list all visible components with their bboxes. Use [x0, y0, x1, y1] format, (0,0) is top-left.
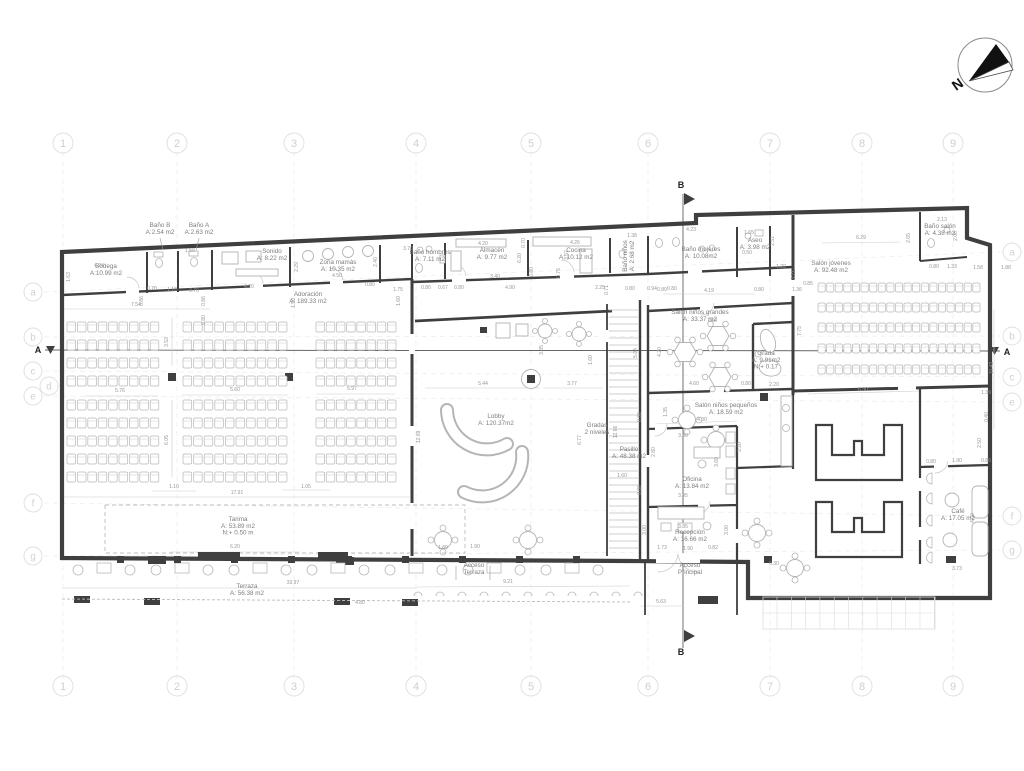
dimension-label: 2.80: [651, 447, 657, 457]
dimension-label: 0.80: [667, 286, 677, 292]
dimension-label: 2.13: [937, 217, 947, 223]
dimension-label: 1.73: [657, 545, 667, 551]
exterior-stair: [816, 502, 902, 557]
dimension-label: 6.20: [517, 253, 523, 263]
grid-row-label: f: [32, 499, 35, 510]
grid-column-label: 5: [528, 681, 534, 693]
seat: [268, 358, 277, 368]
seat: [257, 436, 266, 446]
shelf: [726, 484, 735, 494]
dimension-label: 4.20: [478, 241, 488, 247]
dimension-label: 9.21: [503, 579, 513, 585]
seat: [336, 418, 345, 428]
seat: [852, 344, 859, 353]
seat: [973, 344, 980, 353]
seat: [77, 418, 86, 428]
grid-row-label: a: [1009, 248, 1015, 259]
seat: [236, 340, 245, 350]
dimension-label: 3.21: [791, 270, 797, 280]
dimension-label: 1.63: [66, 272, 72, 282]
room-label-bano-mujeres: Baño mujeresA: 10.08m2: [682, 246, 721, 260]
seat: [268, 376, 277, 386]
dimension-label: 4.90: [505, 285, 515, 291]
seat: [367, 340, 376, 350]
section-a-label-left: A: [35, 345, 42, 355]
seat: [347, 472, 356, 482]
room-label-salon-ninos-pequenos: Salón niños pequeñosA: 18.59 m2: [695, 402, 757, 416]
seat: [247, 418, 256, 428]
dimension-label: 1.89: [438, 545, 448, 551]
dimension-label: 0.80: [201, 315, 207, 325]
exterior-stair: [816, 425, 902, 480]
seat: [921, 323, 928, 332]
dimension-label: 1.36: [792, 287, 802, 293]
seat: [818, 365, 825, 374]
seat: [947, 303, 954, 312]
seat: [861, 283, 868, 292]
dimension-label: 0.67: [438, 285, 448, 291]
seat: [347, 436, 356, 446]
seat: [357, 400, 366, 410]
seat: [129, 322, 138, 332]
room-label-salon-ninos-grandes: Salón niños grandesA: 33.37 m2: [671, 309, 728, 323]
seat: [257, 454, 266, 464]
grid-column-label: 5: [528, 138, 534, 150]
dimension-label: 4.19: [704, 288, 714, 294]
seat: [215, 472, 224, 482]
column: [573, 556, 580, 563]
seat: [947, 283, 954, 292]
column: [760, 393, 768, 401]
terrace-chair: [634, 592, 642, 596]
seat: [150, 418, 159, 428]
terrace-chair: [590, 592, 598, 596]
seat: [278, 472, 287, 482]
dimension-label: 10.42: [989, 362, 995, 375]
seat: [316, 340, 325, 350]
seat: [387, 454, 396, 464]
seat: [357, 436, 366, 446]
seat: [870, 303, 877, 312]
seat: [109, 376, 118, 386]
grid-row-label: e: [1009, 398, 1015, 409]
seat: [827, 283, 834, 292]
seat: [357, 340, 366, 350]
seat: [183, 376, 192, 386]
interior-wall: [62, 279, 412, 295]
seat: [247, 400, 256, 410]
dimension-label: 5.60: [230, 387, 240, 393]
seat: [268, 322, 277, 332]
dimension-label: 0.70: [189, 288, 199, 294]
terrace-table: [253, 563, 267, 573]
seat: [225, 358, 234, 368]
dimension-labels: 1.634.247.541.500.701.100.700.860.864.20…: [66, 217, 1011, 606]
seat: [377, 436, 386, 446]
seat: [921, 344, 928, 353]
seat: [150, 340, 159, 350]
room-label-bano-b: Baño BA:2.54 m2: [146, 222, 175, 236]
seat: [930, 344, 937, 353]
lobby-table: [513, 525, 543, 555]
seat: [870, 283, 877, 292]
terrace-chair: [436, 592, 444, 596]
seat: [215, 376, 224, 386]
grid-column-label: 6: [645, 681, 651, 693]
seat: [336, 454, 345, 464]
dimension-label: 0.80: [929, 264, 939, 270]
seat: [109, 358, 118, 368]
seat: [183, 400, 192, 410]
terrace-table: [175, 563, 189, 573]
seat: [183, 340, 192, 350]
dimension-label: 3.40: [490, 274, 500, 280]
room-label-almacen: AlmacénA: 9.77 m2: [477, 247, 508, 261]
dimension-label: 1.33: [947, 264, 957, 270]
seat: [257, 322, 266, 332]
seat: [878, 344, 885, 353]
seat: [109, 418, 118, 428]
terrace-table: [487, 563, 501, 573]
seat: [964, 344, 971, 353]
terrace-chair: [73, 565, 83, 575]
column: [527, 375, 535, 383]
grid-column-label: 1: [60, 138, 66, 150]
seat: [257, 472, 266, 482]
cafe-chairs: [927, 473, 933, 563]
room-label-aseo: AseoA: 3.98 m2: [740, 237, 771, 251]
shelf: [451, 251, 461, 271]
dimension-label: 0.30: [769, 561, 779, 567]
room-label-recepcion: RecepciónA: 16.66 m2: [673, 529, 707, 543]
dimension-label: 0.80: [529, 267, 535, 277]
seat: [377, 322, 386, 332]
seat: [377, 358, 386, 368]
seat: [947, 323, 954, 332]
column: [168, 373, 176, 381]
room-label-acceso-principal: AccesoPrincipal: [678, 562, 702, 576]
seat: [204, 454, 213, 464]
room-label-sonido: SonidoA: 8.22 m2: [257, 248, 288, 262]
seat: [225, 454, 234, 464]
seat: [326, 358, 335, 368]
dimension-label: 1.60: [396, 296, 402, 306]
seat: [109, 436, 118, 446]
seat: [67, 340, 76, 350]
desk: [694, 447, 720, 458]
patio-table: [780, 553, 810, 583]
sink: [783, 425, 790, 432]
seat: [225, 376, 234, 386]
room-label-pasillo: PasilloA: 48.38 m2: [612, 446, 646, 460]
seat: [204, 400, 213, 410]
seat: [827, 303, 834, 312]
north-label: N: [949, 75, 966, 94]
room-label-acceso-terraza: AccesoTerraza: [464, 562, 485, 576]
seat: [964, 323, 971, 332]
interior-wall: [640, 300, 648, 560]
seat: [88, 418, 97, 428]
seat: [973, 283, 980, 292]
column: [174, 556, 181, 563]
seat: [956, 323, 963, 332]
terrace-chair: [229, 565, 239, 575]
seat: [921, 283, 928, 292]
seat: [316, 376, 325, 386]
seat: [194, 454, 203, 464]
seat: [904, 283, 911, 292]
sink: [783, 405, 790, 412]
seat: [236, 376, 245, 386]
door-openings: [126, 268, 948, 563]
seat: [336, 436, 345, 446]
grid-row-line: [44, 550, 1000, 556]
seat: [347, 340, 356, 350]
seat: [336, 376, 345, 386]
seat: [77, 358, 86, 368]
dimension-label: 3.57: [564, 250, 570, 260]
seat: [357, 322, 366, 332]
dimension-label: 0.86: [139, 296, 145, 306]
seat: [88, 472, 97, 482]
seat: [129, 418, 138, 428]
floor-plan-canvas: 112233445566778899aabbccdeeffgg A A B B: [0, 0, 1024, 771]
seat: [844, 323, 851, 332]
cafe-table: [943, 533, 957, 547]
seat: [387, 358, 396, 368]
seat: [88, 454, 97, 464]
room-label-bano-ninos: Baño niñosA: 2.68 m2: [622, 240, 636, 272]
grid-column-label: 9: [950, 681, 956, 693]
dimension-label: 6.29: [856, 235, 866, 241]
room-label-zona-mamas: Zona mamásA: 10.35 m2: [320, 259, 357, 273]
grid-row-label: e: [30, 392, 36, 403]
dimension-label: 6.77: [577, 435, 583, 445]
grid-column-label: 4: [413, 681, 419, 693]
seat: [98, 376, 107, 386]
seat: [247, 322, 256, 332]
seat: [835, 365, 842, 374]
seat: [870, 344, 877, 353]
seat: [316, 418, 325, 428]
seat: [387, 376, 396, 386]
seat: [215, 436, 224, 446]
dimension-label: 4.20: [244, 284, 254, 290]
terrace-chair: [414, 592, 422, 596]
dimension-label: 12.66: [613, 426, 619, 439]
seat: [377, 376, 386, 386]
lobby-kiosk: [516, 324, 528, 336]
room-label-lobby: LobbyA: 120.37m2: [478, 413, 514, 427]
seat: [140, 400, 149, 410]
seat: [140, 358, 149, 368]
chair: [698, 460, 706, 468]
seat: [973, 365, 980, 374]
seat: [183, 322, 192, 332]
seat: [956, 303, 963, 312]
seat: [129, 376, 138, 386]
column: [516, 556, 523, 563]
seat: [973, 323, 980, 332]
seat: [150, 454, 159, 464]
dimension-label: 0.80: [741, 381, 751, 387]
seat: [119, 436, 128, 446]
seat: [827, 323, 834, 332]
seat: [278, 400, 287, 410]
seat: [336, 340, 345, 350]
seat: [204, 376, 213, 386]
grid-column-label: 9: [950, 138, 956, 150]
seat: [140, 472, 149, 482]
seat: [947, 365, 954, 374]
seat: [88, 376, 97, 386]
seat: [129, 472, 138, 482]
cafe-table: [945, 493, 959, 507]
grid-column-label: 6: [645, 138, 651, 150]
grid-column-label: 7: [767, 681, 773, 693]
seat: [278, 418, 287, 428]
seat: [367, 376, 376, 386]
grid-row-label: d: [46, 382, 52, 393]
seat: [887, 323, 894, 332]
seat: [109, 472, 118, 482]
seat: [347, 418, 356, 428]
dimension-label: 4.50: [332, 273, 342, 279]
grid-row-label: f: [1011, 512, 1014, 523]
seat: [326, 454, 335, 464]
reception-desk: [658, 507, 704, 519]
seat: [109, 400, 118, 410]
terrace-chair: [151, 565, 161, 575]
seat: [119, 454, 128, 464]
seat: [77, 454, 86, 464]
dimension-label: 1.10: [167, 287, 177, 293]
seat: [844, 303, 851, 312]
seat: [236, 400, 245, 410]
dimension-label: 3.00: [642, 525, 648, 535]
seat: [326, 322, 335, 332]
seat: [377, 400, 386, 410]
dimension-label: 0.71: [604, 285, 610, 295]
seat: [183, 418, 192, 428]
lobby-kiosk: [496, 323, 510, 338]
seat: [377, 340, 386, 350]
floor-plan-svg: 112233445566778899aabbccdeeffgg A A B B: [0, 0, 1024, 771]
seat: [88, 322, 97, 332]
dimension-label: 4.26: [570, 240, 580, 246]
seat: [921, 365, 928, 374]
seat: [357, 418, 366, 428]
seat: [257, 376, 266, 386]
dimension-label: 33.97: [287, 580, 300, 586]
terrace-furniture: [73, 563, 642, 596]
seat: [183, 436, 192, 446]
seat: [98, 400, 107, 410]
seat: [236, 418, 245, 428]
seat: [225, 340, 234, 350]
grid-column-label: 8: [859, 138, 865, 150]
dimension-label: 3.80: [678, 433, 688, 439]
dimension-label: 2.51: [770, 236, 776, 246]
seat: [387, 400, 396, 410]
grid-column-label: 7: [767, 138, 773, 150]
seat: [278, 454, 287, 464]
seat: [150, 472, 159, 482]
seat: [818, 283, 825, 292]
dimension-label: 1.60: [588, 355, 594, 365]
dimension-label: 0.50: [742, 250, 752, 256]
dimension-label: 6.20: [230, 544, 240, 550]
column: [345, 556, 352, 563]
seat: [336, 400, 345, 410]
terrace-chair: [307, 565, 317, 575]
seat: [150, 358, 159, 368]
seat: [183, 472, 192, 482]
seat: [236, 454, 245, 464]
seat: [67, 358, 76, 368]
dimension-label: 1.90: [470, 544, 480, 550]
shelf: [726, 432, 735, 443]
seat: [895, 303, 902, 312]
seat: [119, 472, 128, 482]
seat: [247, 436, 256, 446]
seat: [278, 340, 287, 350]
grid-column-label: 4: [413, 138, 419, 150]
cafe-chair: [927, 515, 933, 526]
seat: [77, 400, 86, 410]
seat: [835, 323, 842, 332]
dimension-label: 1.50: [291, 298, 297, 308]
seat: [204, 358, 213, 368]
sound-console: [236, 269, 278, 276]
dimension-label: 0.80: [637, 485, 643, 495]
seat: [204, 436, 213, 446]
seat: [878, 283, 885, 292]
dimension-label: 0.86: [981, 458, 991, 464]
seat: [930, 365, 937, 374]
grid-row-label: g: [1009, 546, 1015, 557]
seat: [215, 340, 224, 350]
seat: [129, 358, 138, 368]
terrace-chair: [502, 592, 510, 596]
seat: [225, 472, 234, 482]
grid-column-label: 1: [60, 681, 66, 693]
grid-row-label: b: [30, 333, 36, 344]
seat: [938, 283, 945, 292]
seat: [268, 418, 277, 428]
dimension-label: 0.70: [521, 238, 527, 248]
seat: [98, 340, 107, 350]
lobby-table: [567, 322, 592, 347]
dimension-label: 1.90: [683, 546, 693, 552]
column: [946, 556, 956, 563]
terrace-chair: [203, 565, 213, 575]
room-label-bano-hombres: Baño hombresA: 7.11 m2: [410, 249, 451, 263]
dimension-label: 0.85: [803, 281, 813, 287]
seat: [183, 454, 192, 464]
terrace-chair: [480, 592, 488, 596]
column: [231, 556, 238, 563]
seat: [387, 340, 396, 350]
seat: [129, 400, 138, 410]
seat: [367, 472, 376, 482]
seat: [150, 376, 159, 386]
seat: [150, 400, 159, 410]
seat: [140, 340, 149, 350]
section-a-label-right: A: [1004, 347, 1011, 357]
seat: [215, 400, 224, 410]
seat: [336, 472, 345, 482]
